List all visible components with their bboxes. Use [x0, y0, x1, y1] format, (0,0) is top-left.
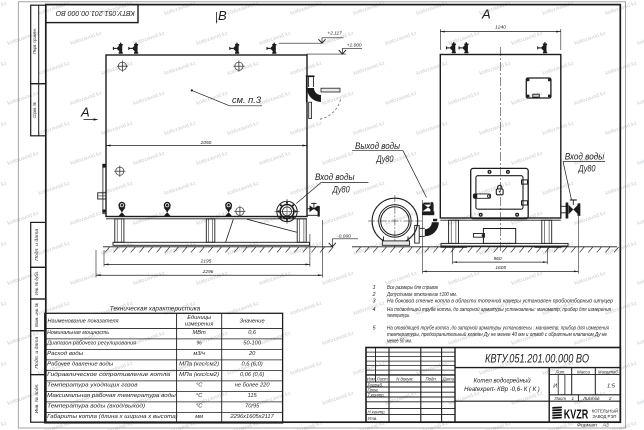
svg-text:Справ. №: Справ. №	[32, 102, 37, 118]
svg-text:50-100: 50-100	[243, 341, 262, 347]
svg-text:20: 20	[248, 351, 256, 357]
svg-text:70/95: 70/95	[245, 404, 260, 410]
svg-text:На подводящей трубе котла, д: На подводящей трубе котла, до запорной а…	[387, 306, 611, 313]
svg-text:KVZR: KVZR	[564, 407, 589, 421]
svg-text:2050: 2050	[200, 140, 212, 146]
svg-text:Значение: Значение	[240, 319, 265, 325]
svg-text:КВТУ.051.201.00.000 ВО: КВТУ.051.201.00.000 ВО	[56, 9, 135, 18]
svg-text:температуры, предохранительный: температуры, предохранительный клапан Ду…	[387, 331, 607, 338]
svg-text:Температура уходящих газов: Температура уходящих газов	[47, 383, 138, 389]
svg-text:Максимальная рабочая температу: Максимальная рабочая температура воды	[47, 393, 177, 399]
svg-text:0,6 (6,0): 0,6 (6,0)	[242, 362, 263, 368]
svg-text:1605: 1605	[495, 265, 506, 271]
svg-text:ЗАВОД РЭП: ЗАВОД РЭП	[592, 414, 616, 419]
svg-text:+2.000: +2.000	[347, 42, 362, 48]
svg-text:Т.контр.: Т.контр.	[368, 393, 385, 398]
svg-text:И: И	[553, 384, 557, 390]
svg-text:960: 960	[494, 256, 502, 262]
svg-text:МПа (кгс/см2): МПа (кгс/см2)	[179, 362, 219, 368]
svg-text:0,6: 0,6	[248, 330, 257, 336]
svg-text:Формат: Формат	[577, 422, 597, 428]
svg-text:Н.контр.: Н.контр.	[368, 410, 386, 415]
svg-text:Взам. инв. №: Взам. инв. №	[34, 303, 39, 327]
svg-text:измерения: измерения	[185, 322, 213, 328]
svg-text:Листов: Листов	[582, 396, 600, 401]
svg-text:Подп.: Подп.	[425, 376, 436, 381]
svg-text:1: 1	[373, 285, 376, 291]
svg-text:Вход воды: Вход воды	[565, 151, 605, 162]
svg-text:4: 4	[373, 307, 376, 313]
svg-text:см. п.3: см. п.3	[232, 95, 262, 105]
svg-text:Температура воды (вход/выход): Температура воды (вход/выход)	[47, 404, 145, 410]
svg-text:мм: мм	[195, 414, 203, 420]
svg-text:-0.000: -0.000	[337, 233, 351, 239]
svg-text:0,06 (0,6): 0,06 (0,6)	[240, 372, 264, 378]
svg-text:2296х1605х2117: 2296х1605х2117	[230, 414, 275, 420]
svg-text:2195: 2195	[200, 258, 212, 264]
svg-text:Heatexpert- КВр -0,6- К ( К ): Heatexpert- КВр -0,6- К ( К )	[464, 387, 540, 393]
svg-text:Номинальная мощность: Номинальная мощность	[47, 330, 109, 336]
svg-text:не более 220: не более 220	[235, 383, 271, 389]
svg-text:Все размеры для справок: Все размеры для справок	[387, 285, 438, 291]
svg-text:B: B	[218, 8, 227, 23]
svg-text:Техническая характеристика: Техническая характеристика	[110, 306, 201, 313]
svg-text:2296: 2296	[202, 269, 214, 275]
svg-text:Гидравлическое сопротивление к: Гидравлическое сопротивление котла	[47, 372, 170, 378]
svg-text:Ду80: Ду80	[376, 154, 394, 165]
svg-text:Единицы: Единицы	[187, 315, 212, 321]
svg-text:КОТЕЛЬНЫЙ: КОТЕЛЬНЫЙ	[592, 409, 618, 414]
svg-text:2: 2	[608, 396, 612, 401]
svg-text:Лит.: Лит.	[554, 369, 565, 374]
svg-text:Инв. № подл.: Инв. № подл.	[34, 383, 39, 413]
svg-text:Габариты котла (длина х ширина: Габариты котла (длина х ширина х высота)	[47, 414, 178, 420]
svg-text:Лист: Лист	[554, 396, 567, 401]
svg-text:Перв. примен.: Перв. примен.	[32, 28, 37, 54]
svg-text:Наименование показателя: Наименование показателя	[48, 319, 119, 325]
svg-text:Изм: Изм	[367, 376, 375, 381]
svg-text:температуры.: температуры.	[387, 313, 410, 319]
svg-text:°С: °С	[196, 393, 203, 399]
svg-text:КВТУ.051.201.00.000 ВО: КВТУ.051.201.00.000 ВО	[485, 352, 589, 366]
svg-text:Котел водогрейный: Котел водогрейный	[473, 378, 531, 385]
svg-text:Дата: Дата	[442, 376, 455, 381]
svg-text:Ду80: Ду80	[332, 185, 350, 196]
svg-text:Диапазон рабочего регулировани: Диапазон рабочего регулирования	[46, 341, 136, 347]
svg-text:Расход воды: Расход воды	[47, 351, 84, 357]
svg-text:менее 50 мм.: менее 50 мм.	[387, 338, 412, 344]
svg-text:Утв.: Утв.	[368, 416, 378, 421]
svg-text:А3: А3	[602, 422, 609, 428]
svg-text:Масса: Масса	[577, 369, 591, 374]
svg-text:2: 2	[372, 292, 376, 298]
svg-text:1240: 1240	[495, 24, 506, 30]
svg-text:Масштаб: Масштаб	[598, 369, 618, 374]
svg-text:МПа (кгс/см2): МПа (кгс/см2)	[179, 372, 219, 378]
svg-text:115: 115	[248, 393, 258, 399]
svg-text:А: А	[80, 105, 90, 120]
svg-text:Допустимое отклонение ±100 мм: Допустимое отклонение ±100 мм.	[386, 292, 457, 298]
svg-text:Лист: Лист	[376, 376, 388, 381]
svg-text:м3/ч: м3/ч	[193, 351, 205, 357]
svg-text:Подп. и дата: Подп. и дата	[34, 228, 39, 260]
svg-text:На боковой стенке котла в обла: На боковой стенке котла в области топочн…	[387, 297, 613, 304]
svg-text:N докум.: N докум.	[396, 376, 413, 381]
svg-text:Ду80: Ду80	[578, 164, 596, 175]
svg-text:°С: °С	[196, 383, 203, 389]
svg-text:МВт: МВт	[193, 330, 207, 336]
svg-text:°С: °С	[196, 404, 203, 410]
svg-text:%: %	[197, 341, 202, 347]
svg-text:1:5: 1:5	[607, 383, 616, 389]
svg-text:+2.117: +2.117	[327, 30, 342, 36]
svg-text:Подп. и дата: Подп. и дата	[34, 336, 39, 368]
svg-text:А: А	[481, 6, 491, 21]
svg-text:Инв. № дубл.: Инв. № дубл.	[34, 271, 39, 295]
svg-text:На отводящей трубе котла ,до з: На отводящей трубе котла ,до запорной ар…	[387, 325, 609, 332]
svg-text:Вход воды: Вход воды	[315, 172, 355, 183]
svg-text:Рабочее давление воды: Рабочее давление воды	[47, 362, 114, 368]
